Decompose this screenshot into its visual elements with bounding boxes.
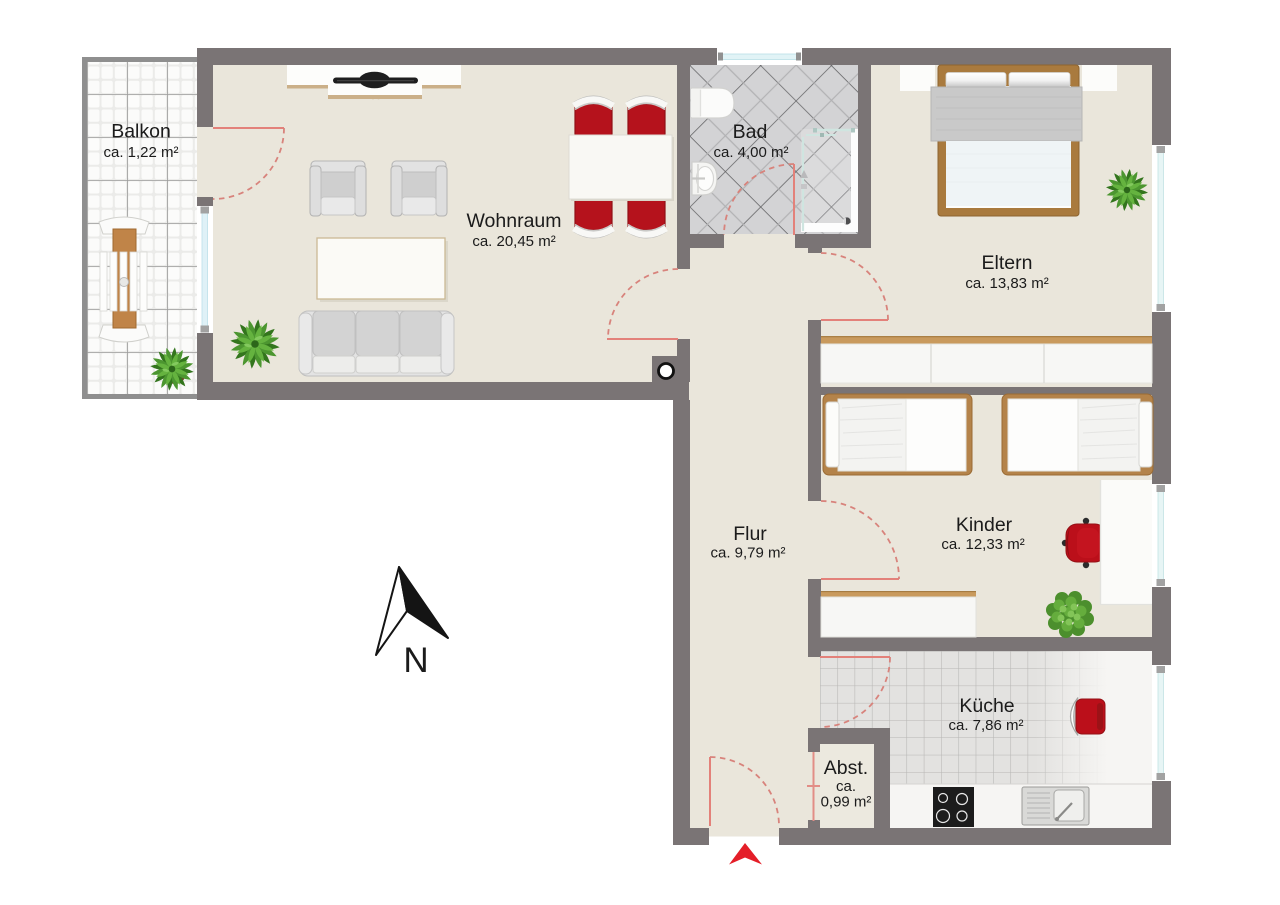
svg-text:ca. 13,83 m²: ca. 13,83 m² (965, 275, 1048, 292)
svg-text:ca.: ca. (836, 778, 856, 795)
svg-text:N: N (403, 641, 428, 680)
svg-text:Flur: Flur (733, 523, 767, 545)
svg-text:Kinder: Kinder (956, 514, 1013, 536)
svg-text:Bad: Bad (733, 121, 768, 143)
svg-text:Eltern: Eltern (982, 252, 1033, 274)
svg-text:ca. 20,45 m²: ca. 20,45 m² (472, 233, 555, 250)
svg-text:Küche: Küche (959, 695, 1014, 717)
svg-text:ca. 1,22 m²: ca. 1,22 m² (103, 144, 178, 161)
svg-text:0,99 m²: 0,99 m² (821, 794, 872, 811)
svg-text:Abst.: Abst. (824, 757, 868, 779)
svg-text:Balkon: Balkon (111, 121, 171, 143)
svg-text:ca. 4,00 m²: ca. 4,00 m² (713, 144, 788, 161)
svg-text:ca. 12,33 m²: ca. 12,33 m² (941, 536, 1024, 553)
svg-text:ca. 7,86 m²: ca. 7,86 m² (948, 717, 1023, 734)
svg-text:Wohnraum: Wohnraum (466, 210, 561, 232)
svg-text:ca. 9,79 m²: ca. 9,79 m² (710, 545, 785, 562)
